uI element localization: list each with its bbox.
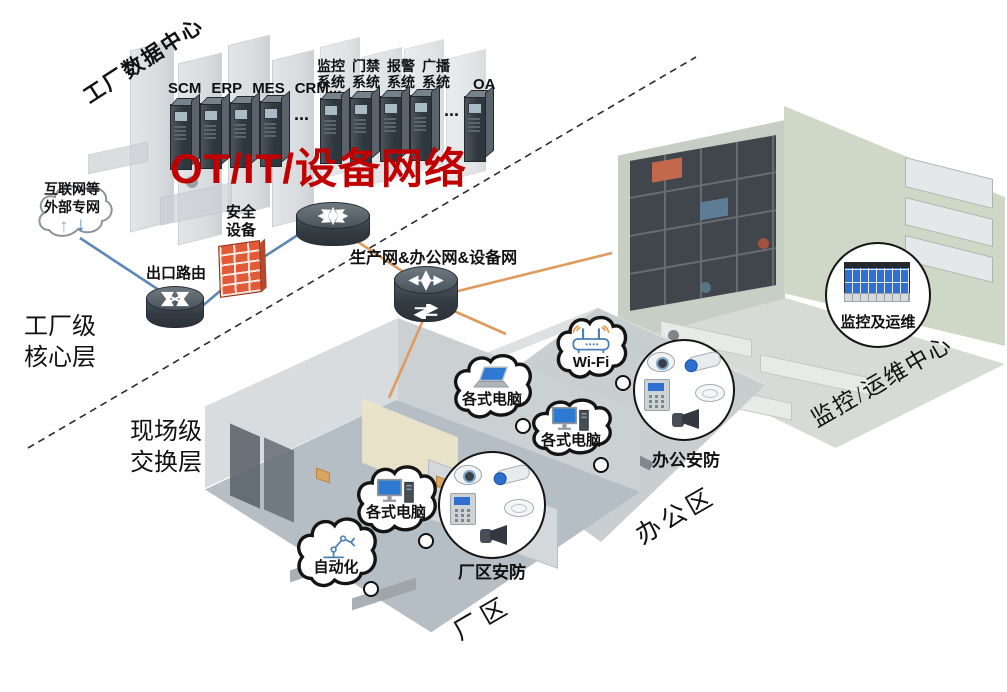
bubble-tail-dot [615, 375, 631, 391]
upload-arrow-icon: ↑ [59, 216, 69, 238]
bubble-tail-dot [418, 533, 434, 549]
bubble-office-laptop: 各式电脑 [451, 351, 533, 421]
app-server-labels: SCM ERP MES CRM... [168, 80, 341, 97]
bubble-office-pc: 各式电脑 [529, 396, 613, 458]
ellipsis: ... [294, 104, 309, 126]
field-layer-label: 现场级 交换层 [130, 417, 202, 479]
dome-camera-icon [454, 465, 482, 485]
desktop-pc-icon [375, 478, 417, 504]
link-dist-factory [389, 318, 424, 398]
access-control-panel-icon [644, 379, 670, 411]
bullet-camera-icon [686, 350, 723, 373]
laptop-icon [473, 366, 511, 391]
firewall-icon [218, 240, 262, 298]
office-security-circle [633, 339, 735, 441]
diagram-title: OT/IT/设备网络 [170, 144, 467, 194]
bubble-label: 各式电脑 [541, 433, 601, 448]
server-label-broadcast: 广播 系统 [422, 58, 450, 90]
bubble-tail-dot [593, 457, 609, 473]
robot-arm-icon [316, 529, 356, 559]
server-label-erp: ERP [211, 80, 242, 97]
bubble-tail-dot [363, 581, 379, 597]
server-label-monitoring: 监控 系统 [317, 58, 345, 90]
core-layer-label: 工厂级 核心层 [24, 312, 96, 374]
wifi-router-icon [569, 324, 613, 354]
smoke-detector-icon [504, 499, 534, 517]
smoke-detector-icon [695, 384, 725, 402]
alarm-speaker-icon [480, 525, 508, 545]
monitoring-ops-circle: 监控及运维 [825, 242, 931, 348]
dome-camera-icon [647, 352, 675, 372]
alarm-speaker-icon [672, 409, 700, 429]
security-device-label: 安全 设备 [226, 204, 256, 240]
bubble-wifi: Wi-Fi [554, 313, 628, 381]
factory-security-label: 厂区安防 [458, 558, 526, 583]
connection-lines [0, 0, 1007, 692]
edge-router-icon [146, 286, 204, 328]
ellipsis: ... [444, 100, 459, 122]
access-control-panel-icon [450, 493, 476, 525]
desktop-pc-icon [550, 406, 592, 432]
factory-security-circle [438, 451, 546, 559]
monitoring-ops-label: 监控及运维 [827, 311, 929, 332]
office-security-label: 办公安防 [652, 446, 720, 471]
distribution-switch-icon [394, 266, 458, 322]
server-label-access: 门禁 系统 [352, 58, 380, 90]
server-label-oa: OA [473, 76, 496, 94]
server-label-scm: SCM [168, 80, 201, 97]
bubble-label: 自动化 [313, 560, 358, 575]
server-label-alarm: 报警 系统 [387, 58, 415, 90]
bubble-label: Wi-Fi [573, 355, 610, 370]
server-label-mes: MES [252, 80, 285, 97]
network-architecture-diagram: 工厂数据中心 SCM ERP MES CRM... ... 监控 系统 门禁 系… [0, 0, 1007, 692]
download-arrow-icon: ↓ [76, 214, 86, 236]
bubble-label: 各式电脑 [462, 392, 522, 407]
video-wall-icon [844, 262, 910, 302]
edge-router-label: 出口路由 [146, 265, 206, 283]
sys-server-labels: 监控 系统 门禁 系统 报警 系统 广播 系统 [317, 58, 450, 90]
server-tower [464, 96, 486, 162]
bullet-camera-icon [495, 463, 532, 486]
core-switch-icon [296, 202, 370, 246]
bubble-automation: 自动化 [294, 514, 378, 590]
external-network-label: 互联网等 外部专网 [44, 180, 100, 216]
core-network-label: 生产网&办公网&设备网 [350, 249, 517, 268]
